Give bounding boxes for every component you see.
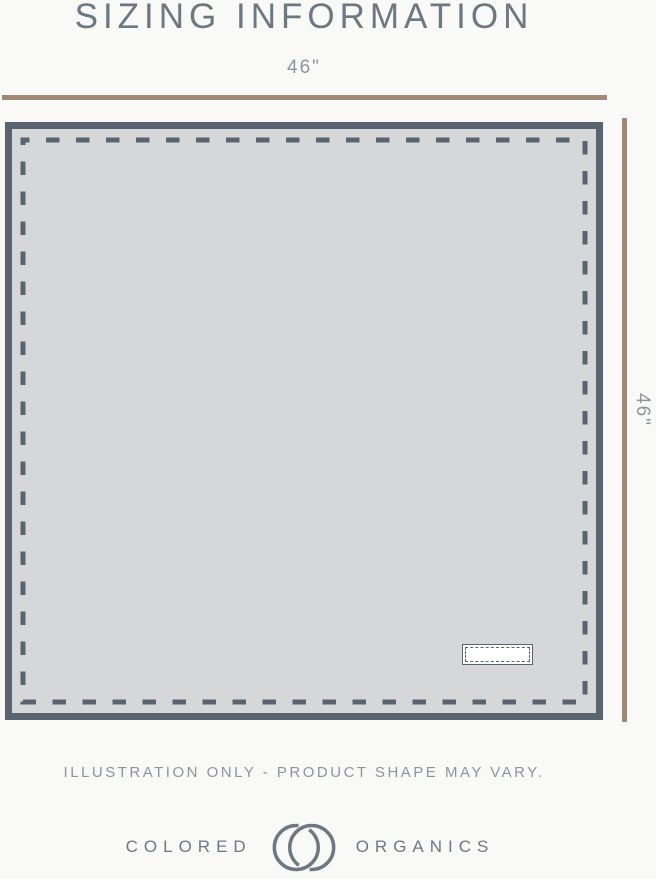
page-title: SIZING INFORMATION [0, 0, 608, 37]
brand-name-right: ORGANICS [356, 837, 495, 857]
blanket-illustration [5, 122, 603, 720]
interlocking-c-rings-icon [272, 821, 336, 874]
sizing-information-graphic: SIZING INFORMATION 46" 46" ILLUSTRATION … [0, 0, 656, 879]
height-measurement-label: 46" [633, 379, 653, 441]
brand-tag [462, 644, 533, 665]
disclaimer-text: ILLUSTRATION ONLY - PRODUCT SHAPE MAY VA… [0, 764, 608, 781]
brand-logo-lockup: COLORED ORGANICS [0, 820, 620, 874]
width-measurement-label: 46" [0, 57, 608, 79]
height-measurement-line [622, 118, 627, 722]
width-measurement-line [2, 95, 607, 100]
brand-name-left: COLORED [126, 837, 252, 857]
stitch-dashed-border [5, 122, 603, 720]
